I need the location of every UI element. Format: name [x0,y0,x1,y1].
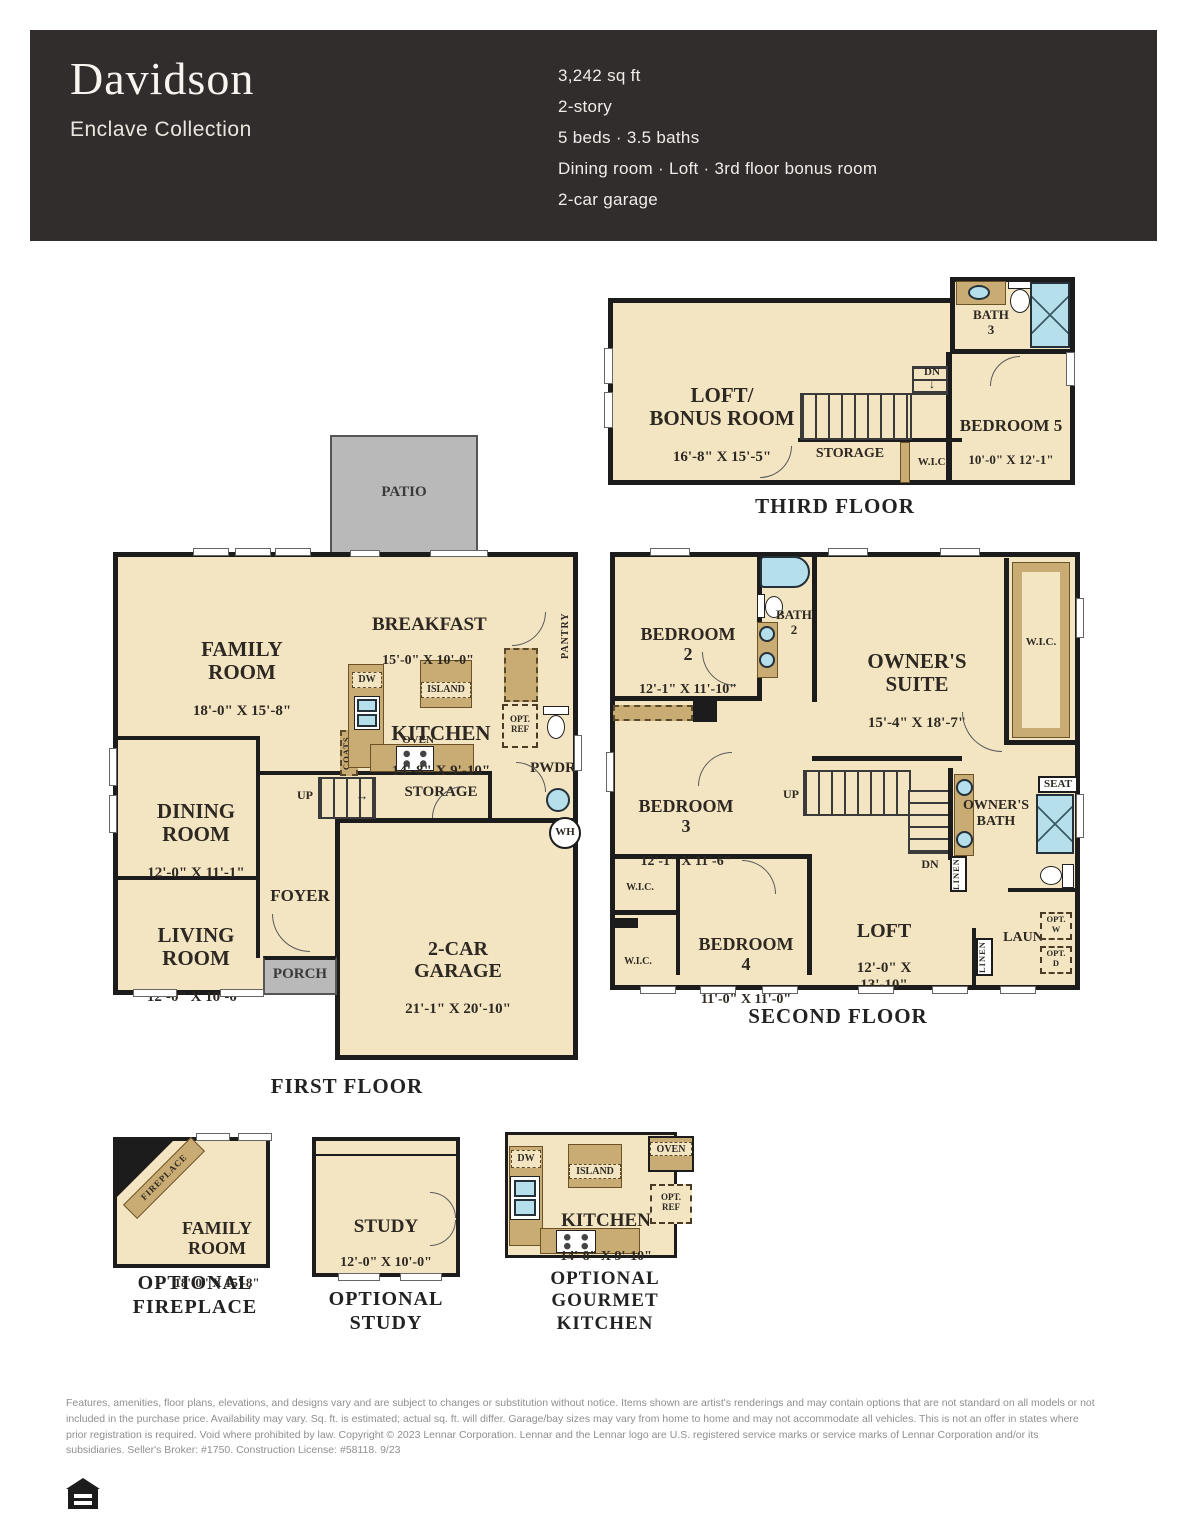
eho-roof [66,1478,100,1489]
window [932,986,968,994]
opt-washer-label: OPT. W [1040,915,1072,934]
collection-name: Enclave Collection [70,118,252,142]
window [1076,598,1084,638]
spec-beds-baths: 5 beds · 3.5 baths [558,128,1118,148]
window [238,1133,272,1141]
wic-closet-inner [1022,572,1060,728]
window [193,548,229,556]
window [700,986,736,994]
sink-basin [357,699,377,712]
header: Davidson Enclave Collection 3,242 sq ft … [30,30,1157,241]
room-label-loft2: LOFT 12'-0" X 13'-10" [832,902,936,1012]
bathtub-icon [760,556,810,588]
room-label-owners-suite: OWNER'S SUITE 15'-4" X 18'-7" [852,632,982,750]
toilet-tank [543,706,569,715]
eho-body [68,1489,98,1509]
window [574,735,582,771]
disclaimer-text: Features, amenities, floor plans, elevat… [66,1396,1098,1459]
stairs-down-run [908,790,950,854]
equal-housing-icon [64,1478,102,1516]
window [604,348,613,384]
plan-title: Davidson [70,52,254,105]
window [640,986,676,994]
dw-label-opt: DW [511,1153,541,1164]
room-label-breakfast: BREAKFAST 15'-0" X 10'-0" [372,596,484,687]
stairs-up-label: UP [778,788,804,801]
window [762,986,798,994]
window [235,548,271,556]
foyer-label: FOYER [268,886,332,905]
sink-basin [357,714,377,727]
wall [1004,558,1009,743]
window [220,989,264,997]
room-label-wic-b: W.I.C. [612,956,664,967]
opt-dryer-label: OPT. D [1040,949,1072,968]
window [650,548,690,556]
toilet-tank [1062,864,1074,888]
window [1076,794,1084,838]
down-arrow-icon: ↓ [918,378,946,391]
pwdr-sink [546,788,570,812]
spec-sqft: 3,242 sq ft [558,66,1118,86]
toilet-tank [757,594,765,618]
room-label-dining: DINING ROOM 12'-0" X 11'-1" [136,782,256,900]
sink-basin [514,1180,536,1197]
window [940,548,980,556]
room-label-storage3: STORAGE [802,446,898,462]
room-label-loft-bonus: LOFT/ BONUS ROOM 16'-8" X 15'-5" [637,366,807,484]
vanity-sink [759,652,775,668]
window [400,1273,442,1281]
porch-label: PORCH [268,966,332,983]
linen-label: LINEN [978,940,991,974]
wall [1004,740,1080,745]
wall [812,756,962,761]
shower-icon [1036,794,1074,854]
patio-door [350,550,380,557]
window [604,392,613,428]
second-floor-caption: SECOND FLOOR [738,1004,938,1029]
room-label-bedroom3: BEDROOM 3 12'-1" X 11'-6" [634,778,738,888]
window [606,752,614,792]
toilet-icon [1040,866,1062,885]
window [1066,352,1075,386]
vanity-sink [956,779,973,796]
toilet-tank [1008,281,1032,289]
wall [948,768,953,860]
stairs [803,770,911,816]
third-floor-caption: THIRD FLOOR [715,494,955,519]
window [828,548,868,556]
room-label-wic3: W.I.C. [910,456,956,468]
patio-label: PATIO [354,484,454,501]
closet-door [900,442,910,483]
opt-fireplace-caption: OPTIONAL FIREPLACE [120,1272,270,1319]
room-label-family: FAMILY ROOM 18'-0" X 15'-8" [182,620,302,738]
wh-label: WH [549,826,581,838]
wall [256,736,260,958]
stairs-up-label: UP [292,789,318,802]
window [1000,986,1036,994]
window [109,748,117,786]
window [858,986,894,994]
stairs-dn-label: DN [914,858,946,871]
room-label-owners-bath: OWNER'S BATH [958,798,1034,829]
eho-bar [74,1501,92,1505]
stairs [800,393,912,440]
window [196,1133,230,1141]
opt-kitchen-caption: OPTIONAL GOURMET KITCHEN [505,1268,705,1335]
patio-door [430,550,488,557]
eho-bar [74,1494,92,1498]
wall [610,910,680,915]
vanity-sink [956,831,973,848]
wall [610,918,638,928]
toilet-icon [547,715,565,739]
pantry-label: PANTRY [560,608,576,664]
opt-study-caption: OPTIONAL STUDY [300,1288,472,1335]
room-label-bedroom5: BEDROOM 5 10'-0" X 12'-1" [952,398,1070,485]
linen-label: LINEN [952,858,965,890]
window [109,795,117,833]
wall [807,854,812,975]
right-arrow-icon: → [352,789,372,804]
island-label-opt: ISLAND [569,1166,621,1177]
room-label-wic-suite: W.I.C. [1014,636,1068,648]
oven-label: OVEN [398,734,438,746]
shower-icon [1030,282,1070,348]
wall [1008,888,1080,892]
room-label-bath3: BATH 3 [962,308,1020,337]
room-label-living: LIVING ROOM 12'-0" X 10'-0" [136,906,256,1024]
window [275,548,311,556]
first-floor-caption: FIRST FLOOR [247,1074,447,1099]
floorplan-sheet: Davidson Enclave Collection 3,242 sq ft … [0,0,1187,1536]
seat-label: SEAT [1038,778,1078,790]
bath3-sink [968,285,990,300]
window [338,1273,380,1281]
spec-rooms: Dining room · Loft · 3rd floor bonus roo… [558,159,1118,179]
opt-ref-label: OPT. REF [502,714,538,734]
wall [316,1154,456,1156]
room-label-garage: 2-CAR GARAGE 21'-1" X 20'-10" [388,920,528,1035]
oven-label-opt: OVEN [650,1144,692,1155]
window [133,989,177,997]
sink-basin [514,1199,536,1216]
spec-garage: 2-car garage [558,190,1118,210]
room-label-bath2: BATH 2 [772,608,816,637]
pantry-cabinet [504,648,538,702]
spec-stories: 2-story [558,97,1118,117]
